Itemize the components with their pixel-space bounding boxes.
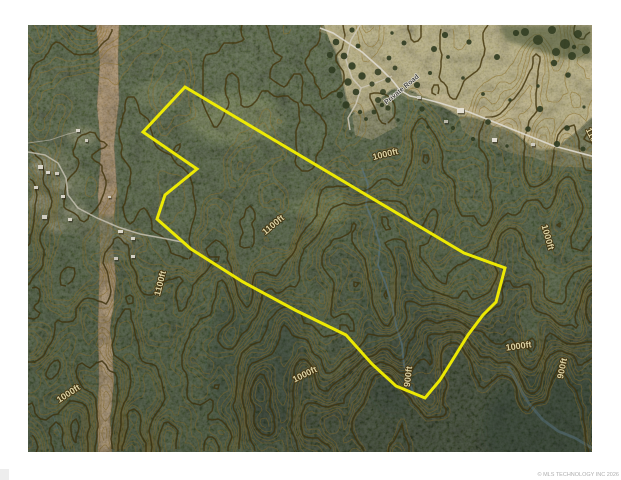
svg-text:© MLS TECHNOLOGY INC 2026: © MLS TECHNOLOGY INC 2026 xyxy=(538,471,620,478)
